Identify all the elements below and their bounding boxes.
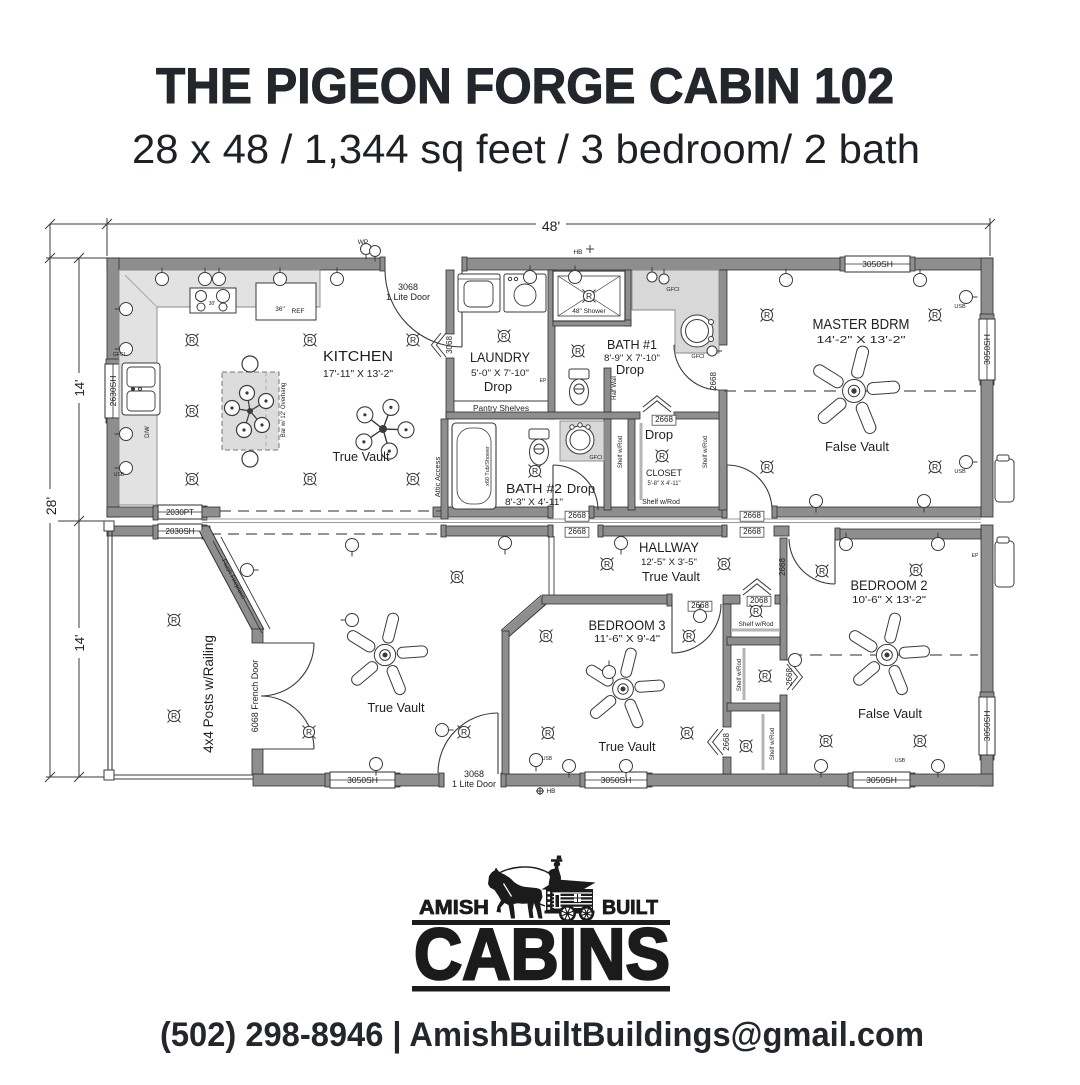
svg-text:R: R [189, 406, 195, 416]
svg-text:REF: REF [292, 308, 305, 315]
svg-text:R: R [306, 727, 312, 737]
svg-text:R: R [764, 462, 770, 472]
svg-text:3050SH: 3050SH [601, 775, 632, 785]
svg-text:28': 28' [43, 497, 59, 515]
svg-text:BEDROOM 3: BEDROOM 3 [589, 617, 666, 633]
svg-text:R: R [575, 346, 581, 356]
svg-text:3068: 3068 [464, 769, 484, 779]
svg-text:3050SH: 3050SH [982, 711, 992, 742]
svg-text:2630SH: 2630SH [108, 376, 118, 407]
svg-text:WP: WP [358, 239, 368, 246]
svg-text:USB: USB [954, 469, 966, 475]
svg-text:True Vault: True Vault [333, 450, 391, 464]
svg-text:48" Shower: 48" Shower [572, 308, 606, 315]
svg-text:14': 14' [72, 380, 87, 397]
svg-text:R: R [171, 615, 177, 625]
svg-text:Drop: Drop [567, 481, 595, 496]
svg-text:BATH #2: BATH #2 [506, 481, 562, 496]
svg-text:3050SH: 3050SH [347, 775, 378, 785]
svg-text:USB: USB [895, 758, 906, 764]
svg-text:1 Lite Door: 1 Lite Door [386, 292, 430, 302]
svg-text:R: R [604, 559, 610, 569]
svg-text:Drop: Drop [484, 379, 512, 394]
svg-text:EP: EP [972, 553, 979, 559]
svg-text:EP: EP [540, 378, 547, 384]
svg-text:Shelf w/Rod: Shelf w/Rod [770, 728, 776, 760]
svg-text:Drop: Drop [616, 362, 644, 377]
svg-text:R: R [917, 736, 923, 746]
svg-text:HB: HB [573, 249, 582, 256]
svg-text:Half Wall: Half Wall [612, 376, 618, 400]
svg-text:R: R [823, 736, 829, 746]
svg-text:True Vault: True Vault [368, 701, 426, 715]
svg-text:11'-6" X 9'-4": 11'-6" X 9'-4" [594, 634, 661, 645]
svg-text:3050SH: 3050SH [866, 775, 897, 785]
svg-text:GFCI: GFCI [589, 455, 603, 461]
svg-text:2668: 2668 [778, 558, 787, 576]
svg-text:Attic Access: Attic Access [433, 457, 442, 498]
svg-text:R: R [307, 474, 313, 484]
svg-text:R: R [913, 565, 919, 575]
svg-text:LAUNDRY: LAUNDRY [470, 350, 530, 365]
svg-text:GFCI: GFCI [691, 354, 705, 360]
svg-text:2030PT: 2030PT [166, 508, 194, 517]
svg-text:3068: 3068 [398, 282, 418, 292]
svg-text:48': 48' [542, 218, 560, 234]
svg-text:R: R [307, 335, 313, 345]
svg-text:KITCHEN: KITCHEN [323, 349, 393, 365]
svg-text:3050SH: 3050SH [862, 259, 893, 269]
svg-text:R: R [686, 631, 692, 641]
svg-text:R: R [189, 474, 195, 484]
svg-text:R: R [743, 741, 749, 751]
svg-text:R: R [410, 335, 416, 345]
svg-text:5'-0" X 7'-10": 5'-0" X 7'-10" [471, 368, 529, 379]
svg-text:Pantry Shelves: Pantry Shelves [473, 404, 529, 413]
svg-text:USB: USB [954, 304, 966, 310]
svg-text:1 Lite Door: 1 Lite Door [452, 779, 496, 789]
svg-text:2668: 2668 [568, 527, 586, 536]
svg-text:R: R [684, 728, 690, 738]
svg-text:2668: 2668 [568, 511, 586, 520]
svg-text:R: R [543, 631, 549, 641]
svg-text:2668: 2668 [743, 511, 761, 520]
svg-text:2668: 2668 [785, 668, 794, 686]
svg-text:Bar w/ 12' Overhang: Bar w/ 12' Overhang [281, 383, 287, 438]
svg-text:Shelf w/Rod: Shelf w/Rod [618, 436, 624, 468]
svg-text:2068: 2068 [750, 596, 768, 605]
svg-text:USB: USB [542, 756, 553, 762]
svg-text:R: R [410, 474, 416, 484]
svg-text:3050SH: 3050SH [982, 334, 992, 365]
svg-text:R: R [659, 451, 665, 461]
svg-text:x60 Tub/Shower: x60 Tub/Shower [485, 446, 491, 486]
svg-text:(502) 298-8946 | AmishBuiltBui: (502) 298-8946 | AmishBuiltBuildings@gma… [160, 1016, 924, 1054]
svg-text:5'-8" X 4'-11": 5'-8" X 4'-11" [648, 480, 682, 487]
svg-text:Shelf w/Rod: Shelf w/Rod [737, 659, 743, 691]
svg-text:R: R [819, 566, 825, 576]
svg-text:R: R [721, 559, 727, 569]
svg-text:R: R [764, 310, 770, 320]
svg-text:17'-11" X 13'-2": 17'-11" X 13'-2" [323, 369, 393, 380]
svg-text:True Vault: True Vault [599, 740, 657, 754]
svg-text:Drop: Drop [645, 427, 673, 442]
svg-text:False Vault: False Vault [825, 439, 889, 454]
svg-text:R: R [762, 671, 768, 681]
svg-text:Shelf w/Rod: Shelf w/Rod [703, 436, 709, 468]
svg-text:BEDROOM 2: BEDROOM 2 [851, 577, 928, 593]
svg-text:R: R [171, 711, 177, 721]
svg-text:MASTER BDRM: MASTER BDRM [813, 317, 910, 333]
svg-text:R: R [189, 335, 195, 345]
svg-text:Shelf w/Rod: Shelf w/Rod [642, 499, 680, 506]
svg-text:R: R [461, 727, 467, 737]
svg-text:HALLWAY: HALLWAY [639, 540, 699, 555]
svg-text:BATH #1: BATH #1 [607, 337, 657, 352]
svg-text:R: R [545, 728, 551, 738]
svg-text:THE PIGEON FORGE CABIN 102: THE PIGEON FORGE CABIN 102 [156, 58, 894, 114]
svg-text:14': 14' [72, 635, 87, 652]
svg-text:2668: 2668 [722, 733, 731, 751]
svg-text:HB: HB [546, 788, 555, 795]
svg-text:10'-6" X 13'-2": 10'-6" X 13'-2" [852, 595, 927, 606]
svg-text:3068: 3068 [445, 336, 454, 354]
svg-text:D/W: D/W [145, 426, 151, 438]
svg-text:2668: 2668 [655, 415, 673, 424]
svg-text:R: R [532, 466, 538, 476]
svg-text:36": 36" [275, 306, 285, 313]
svg-text:R: R [501, 331, 507, 341]
svg-text:R: R [932, 462, 938, 472]
svg-text:8'-3" X 4'-11": 8'-3" X 4'-11" [505, 497, 563, 508]
svg-text:R: R [753, 606, 759, 616]
svg-text:2668: 2668 [743, 527, 761, 536]
svg-text:12'-5" X 3'-5": 12'-5" X 3'-5" [641, 557, 697, 568]
svg-text:CABINS: CABINS [414, 915, 670, 995]
svg-text:2668: 2668 [709, 372, 718, 390]
svg-text:GFCI: GFCI [666, 287, 680, 293]
svg-text:14'-2" X 13'-2": 14'-2" X 13'-2" [817, 334, 906, 346]
svg-text:4x4 Posts w/Railing: 4x4 Posts w/Railing [201, 635, 216, 753]
svg-text:USB: USB [114, 472, 125, 478]
svg-text:R: R [454, 572, 460, 582]
svg-text:Shelf w/Rod: Shelf w/Rod [738, 621, 773, 628]
svg-text:28 x 48 / 1,344 sq feet / 3 be: 28 x 48 / 1,344 sq feet / 3 bedroom/ 2 b… [132, 126, 920, 172]
svg-text:False Vault: False Vault [858, 706, 922, 721]
svg-text:2030SH: 2030SH [166, 527, 195, 536]
svg-text:R: R [932, 310, 938, 320]
svg-text:True Vault: True Vault [642, 570, 701, 584]
svg-text:GFCI: GFCI [113, 352, 125, 358]
svg-text:CLOSET: CLOSET [646, 468, 682, 478]
svg-text:30': 30' [209, 301, 216, 307]
svg-text:6068 French Door: 6068 French Door [250, 660, 260, 733]
svg-text:R: R [586, 291, 592, 301]
